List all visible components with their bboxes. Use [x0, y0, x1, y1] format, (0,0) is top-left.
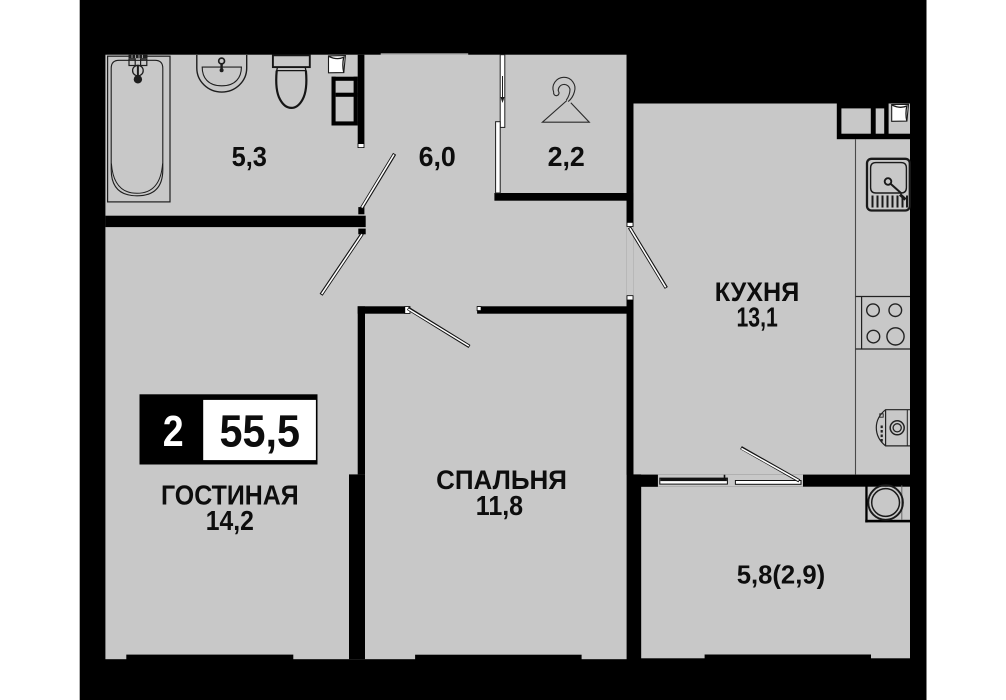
svg-text:5,3: 5,3 [232, 141, 267, 172]
svg-text:13,1: 13,1 [737, 302, 778, 333]
svg-text:6,0: 6,0 [419, 141, 456, 172]
svg-text:2: 2 [163, 407, 184, 456]
svg-text:2,2: 2,2 [548, 141, 585, 172]
svg-text:55,5: 55,5 [220, 406, 301, 457]
svg-text:5,8(2,9): 5,8(2,9) [737, 560, 826, 590]
svg-text:11,8: 11,8 [476, 490, 523, 521]
svg-text:14,2: 14,2 [206, 505, 254, 536]
